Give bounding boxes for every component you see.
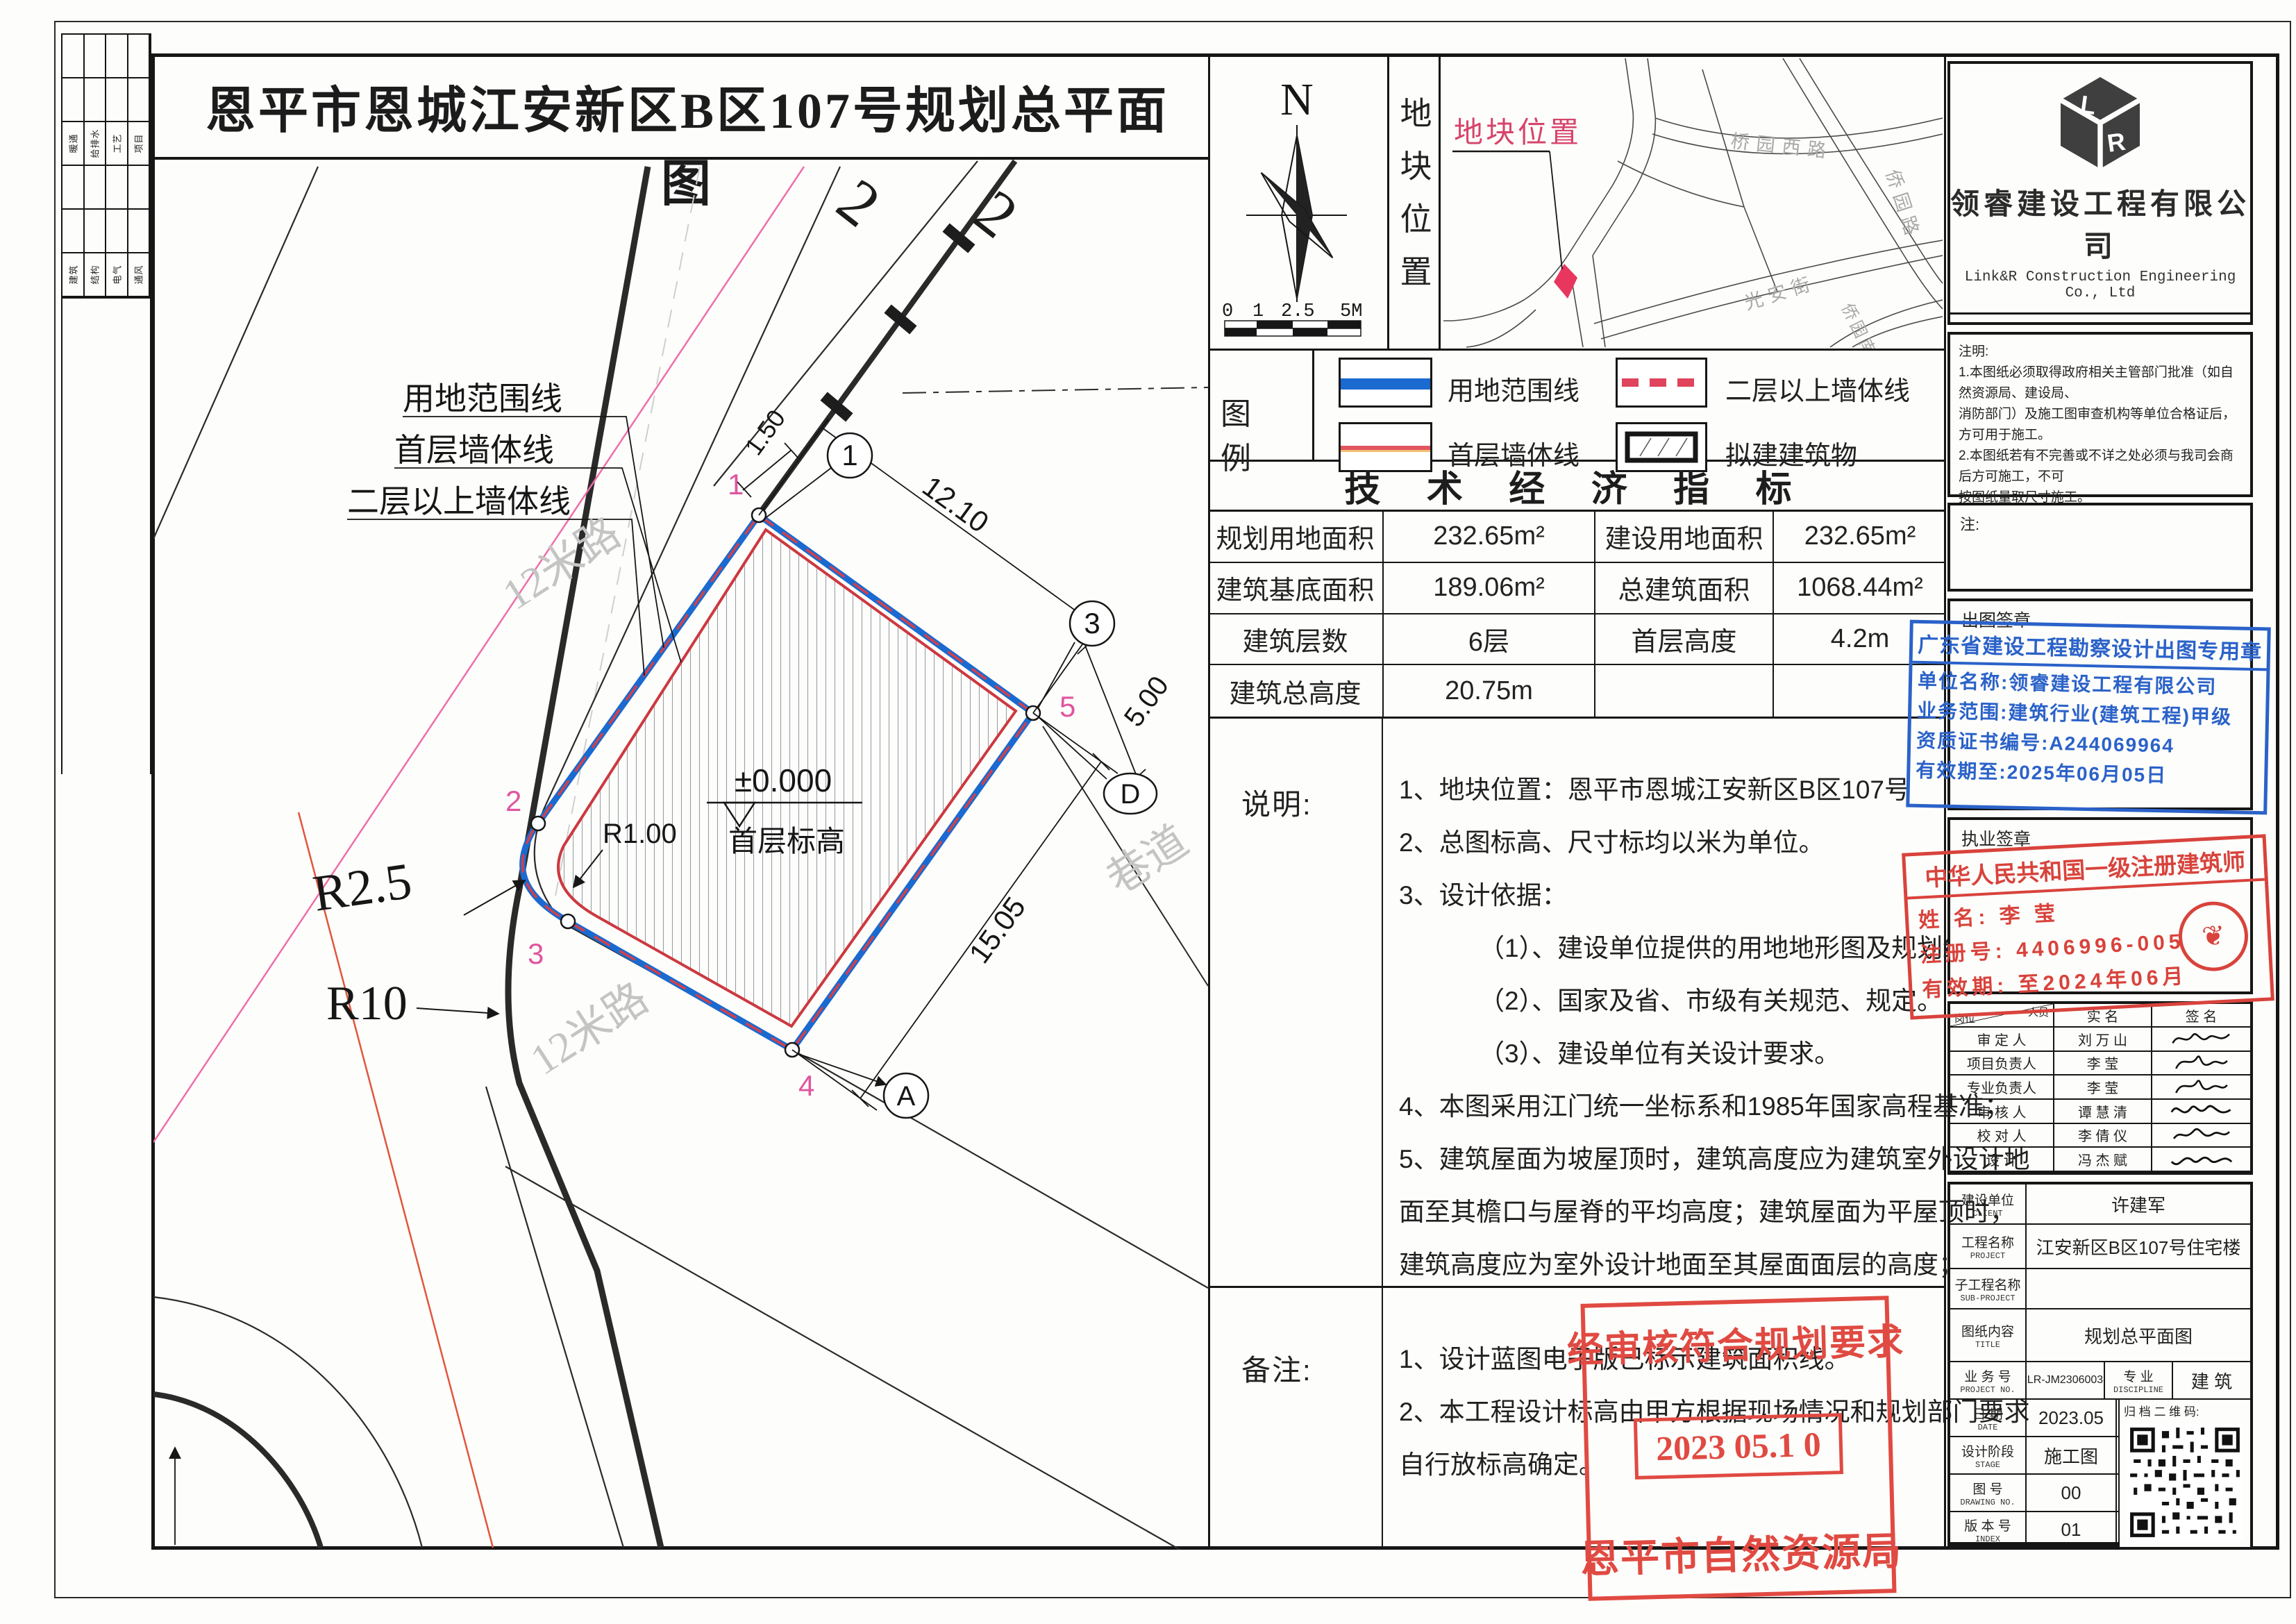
map-road-name: 光安街: [1742, 272, 1818, 313]
map-road-name: 桥园西路: [1729, 131, 1834, 162]
point-number: 2: [505, 785, 521, 817]
personnel-name: 刘 万 山: [2054, 1028, 2152, 1052]
tech-value: 6层: [1384, 614, 1595, 666]
legend-item-label: 二层以上墙体线: [1725, 369, 1910, 408]
tech-value: 189.06m²: [1384, 563, 1595, 614]
note-line: 4、本图采用江门统一坐标系和1985年国家高程基准；: [1399, 1080, 1941, 1133]
radius-label: R1.00: [603, 819, 677, 849]
callout-site-boundary: 用地范围线: [403, 380, 562, 417]
scalebar-icon: [1225, 321, 1361, 336]
point-number: 4: [798, 1069, 814, 1102]
tech-label: 总建筑面积: [1595, 563, 1774, 614]
personnel-name: 谭 慧 清: [2054, 1100, 2152, 1124]
tb-title-label: 图纸内容: [1961, 1321, 2014, 1340]
discipline-label: 项目: [132, 133, 145, 153]
tb-stage-value: 施工图: [2027, 1437, 2117, 1473]
legend-swatch-upper-wall: [1616, 358, 1707, 408]
note-line: 1、地块位置：恩平市恩城江安新区B区107号: [1399, 764, 1941, 817]
tb-discipline-value: 建 筑: [2173, 1362, 2250, 1398]
north-arrow-box: N 0 1 2.5 5M: [1210, 56, 1387, 349]
title-block: 建设单位CLIENT 许建军 工程名称PROJECT 江安新区B区107号住宅楼…: [1947, 1182, 2253, 1547]
tech-value: 20.75m: [1384, 665, 1595, 717]
tb-date-value: 2023.05: [2027, 1400, 2117, 1436]
tb-stage-label: 设计阶段: [1961, 1441, 2014, 1460]
north-label: N: [1280, 74, 1314, 125]
tb-no-label: 业 务 号: [1964, 1366, 2011, 1385]
signature: [2152, 1124, 2250, 1148]
map-roads: [1443, 58, 1943, 347]
signature: [2152, 1052, 2250, 1076]
survey-number: 2: [962, 176, 1031, 251]
tech-value: 232.65m²: [1384, 512, 1595, 563]
callout-floor1-wall: 首层墙体线: [394, 432, 554, 468]
discipline-label: 通风: [132, 265, 145, 284]
compass-icon: [1246, 125, 1347, 302]
discipline-label: 结构: [88, 265, 101, 284]
personnel-role: 项目负责人: [1950, 1052, 2054, 1076]
note-line: 3、设计依据：: [1399, 869, 1941, 922]
countersign-strip-tail: [61, 299, 151, 774]
discipline-label: 建筑: [66, 265, 79, 284]
instructions-box: 注明: 1.本图纸必须取得政府相关主管部门批准（如自然资源局、建设局、 消防部门…: [1947, 332, 2253, 497]
discipline-label: 工艺: [110, 133, 123, 153]
personnel-name: 冯 杰 赋: [2054, 1148, 2152, 1172]
note-line: （3）、建设单位有关设计要求。: [1399, 1028, 1941, 1080]
note-line: 建筑高度应为室外设计地面至其屋面面层的高度；: [1399, 1239, 1941, 1291]
note-box-label: 注:: [1950, 505, 2250, 542]
radius-label: R2.5: [310, 853, 415, 923]
instructions-label: 注明:: [1959, 342, 2242, 362]
map-callout: 地块位置: [1454, 116, 1582, 149]
level-label: 首层标高: [728, 825, 845, 857]
grid-label: A: [897, 1081, 916, 1112]
discipline-label: 给排水: [88, 128, 101, 158]
note-line: 2、总图标高、尺寸标均以米为单位。: [1399, 817, 1941, 869]
notes-body: 1、地块位置：恩平市恩城江安新区B区107号 2、总图标高、尺寸标均以米为单位。…: [1399, 764, 1941, 1291]
tb-client-value: 许建军: [2027, 1184, 2250, 1223]
dimension-text: 1.50: [739, 404, 791, 460]
location-map: 地块位置 桥园西路 侨园路 光安街 侨园南路: [1443, 56, 1944, 349]
approval-stamp-date: 2023 05.1 0: [1634, 1413, 1843, 1480]
map-road-name: 侨园路: [1882, 167, 1924, 243]
svg-text:1: 1: [1252, 301, 1264, 322]
personnel-role: 审 核 人: [1950, 1100, 2054, 1124]
tb-project-label: 工程名称: [1961, 1232, 2014, 1251]
archive-qr-code: [2127, 1424, 2243, 1541]
scalebar-labels: 0 1 2.5 5M: [1222, 301, 1362, 322]
company-logo-icon: L R: [2048, 71, 2152, 175]
chop-out-stamp: 广东省建设工程勘察设计出图专用章 单位名称:领睿建设工程有限公司 业务范围:建筑…: [1906, 620, 2271, 815]
map-road-name: 侨园南路: [1838, 301, 1888, 349]
grid-label: D: [1121, 779, 1141, 810]
instruction-line: 1.本图纸必须取得政府相关主管部门批准（如自然资源局、建设局、: [1959, 362, 2242, 404]
personnel-header-sign: 签 名: [2152, 1004, 2250, 1028]
tb-subproject-label: 子工程名称: [1954, 1275, 2020, 1294]
legend-item-label: 用地范围线: [1448, 369, 1579, 408]
svg-text:5M: 5M: [1340, 301, 1362, 322]
remarks-label: 备注:: [1241, 1347, 1312, 1389]
grid-label: 1: [841, 439, 857, 471]
notes-label: 说明:: [1241, 781, 1312, 823]
tech-label: 建筑基底面积: [1208, 563, 1384, 614]
qr-label: 归 档 二 维 码:: [2120, 1400, 2250, 1421]
tb-project-value: 江安新区B区107号住宅楼: [2027, 1225, 2250, 1268]
personnel-role: 专业负责人: [1950, 1075, 2054, 1100]
instruction-line: 2.本图纸若有不完善或不详之处必须与我司会商后方可施工，不可: [1959, 446, 2242, 487]
tech-label: [1595, 665, 1774, 717]
tb-discipline-label: 专 业: [2123, 1366, 2153, 1385]
tb-dwg-value: 00: [2027, 1475, 2117, 1511]
tech-label: 首层高度: [1595, 614, 1774, 666]
tech-table-title: 技 术 经 济 指 标: [1208, 462, 1946, 512]
note-line: （1）、建设单位提供的用地地形图及规划红线图。: [1399, 922, 1941, 975]
site-plan: 2 2 1 2 3 4 5 12.10: [153, 56, 1208, 1550]
point-number: 3: [528, 937, 544, 970]
instruction-line: 消防部门）及施工图审查机构等单位合格证后，方可用于施工。: [1959, 404, 2242, 446]
discipline-label: 暖通: [66, 133, 79, 153]
tech-value: 1068.44m²: [1774, 563, 1946, 614]
legend-swatch-site: [1339, 358, 1432, 408]
dimension-text: 5.00: [1118, 671, 1175, 733]
tech-value: 232.65m²: [1774, 512, 1946, 563]
tb-date-label: 日 期: [1972, 1404, 2002, 1423]
personnel-name: 李 莹: [2054, 1052, 2152, 1076]
signature: [2152, 1028, 2250, 1052]
note-line: 面至其檐口与屋脊的平均高度；建筑屋面为平屋顶时，: [1399, 1186, 1941, 1239]
dimension-text: 12.10: [916, 469, 995, 539]
signature: [2152, 1100, 2250, 1124]
point-number: 1: [728, 468, 744, 501]
dimension-text: 15.05: [962, 891, 1032, 969]
red-line-orange: [299, 812, 493, 1548]
svg-text:0: 0: [1222, 301, 1233, 322]
tb-no-value: LR-JM2306003: [2027, 1362, 2105, 1398]
signature: [2152, 1075, 2250, 1100]
radius-label: R10: [326, 977, 408, 1030]
tb-index-label: 版 本 号: [1964, 1516, 2011, 1534]
note-box: 注:: [1947, 503, 2253, 592]
tb-index-value: 01: [2027, 1512, 2117, 1547]
drawing-sheet: 暖通 给排水 工艺 项目 建筑 结构 电气 通风 恩平市恩城江安新区B区107号…: [0, 0, 2296, 1624]
grid-label: 3: [1084, 607, 1100, 639]
tech-label: 建设用地面积: [1595, 512, 1774, 563]
personnel-table: 人员 岗位 实 名 签 名 审 定 人 刘 万 山 项目负责人 李 莹 专业负责…: [1947, 1001, 2253, 1175]
discipline-label: 电气: [110, 265, 123, 284]
tb-title-value: 规划总平面图: [2027, 1309, 2250, 1361]
approval-stamp: 经审核符合规划要求 2023 05.1 0 恩平市自然资源局: [1580, 1296, 1896, 1600]
company-name: 领睿建设工程有限公司: [1950, 181, 2250, 265]
approval-stamp-line1: 经审核符合规划要求: [1566, 1312, 1905, 1373]
svg-text:R: R: [2105, 127, 2127, 158]
road-name: 12米路: [523, 974, 657, 1084]
personnel-name: 李 倩 仪: [2054, 1124, 2152, 1148]
tech-label: 建筑层数: [1208, 614, 1384, 666]
point-number: 5: [1059, 690, 1075, 723]
personnel-role: 校 对 人: [1950, 1124, 2054, 1148]
company-box: L R 领睿建设工程有限公司 Link&R Construction Engin…: [1947, 61, 2253, 325]
personnel-role: 设 计: [1950, 1148, 2054, 1172]
location-strip-label: 地块位置: [1391, 97, 1437, 308]
callout-floor2-wall: 二层以上墙体线: [347, 483, 571, 519]
tb-client-label: 建设单位: [1961, 1190, 2014, 1209]
tech-label: 规划用地面积: [1208, 512, 1384, 563]
tech-table: 规划用地面积 232.65m² 建设用地面积 232.65m² 建筑基底面积 1…: [1208, 512, 1946, 719]
location-strip: 地块位置: [1387, 56, 1441, 349]
personnel-name: 李 莹: [2054, 1075, 2152, 1100]
company-name-en: Link&R Construction Engineering Co., Ltd: [1950, 269, 2250, 301]
tb-dwg-label: 图 号: [1972, 1479, 2002, 1498]
note-line: （2）、国家及省、市级有关规范、规定。: [1399, 975, 1941, 1028]
note-line: 5、建筑屋面为坡屋顶时，建筑高度应为建筑室外设计地: [1399, 1133, 1941, 1186]
personnel-role: 审 定 人: [1950, 1028, 2054, 1052]
stamp-title: 广东省建设工程勘察设计出图专用章: [1913, 623, 2268, 671]
tech-label: 建筑总高度: [1208, 665, 1384, 717]
tb-subproject-value: [2027, 1269, 2250, 1308]
approval-stamp-org: 恩平市自然资源局: [1579, 1520, 1903, 1584]
road-name: 12米路: [495, 509, 629, 619]
chop-lic-stamp: 中华人民共和国一级注册建筑师 姓 名: 李 莹 注册号: 4406996-005…: [1902, 834, 2274, 1019]
signature: [2152, 1148, 2250, 1172]
level-value: ±0.000: [735, 762, 832, 798]
countersign-strip: 暖通 给排水 工艺 项目 建筑 结构 电气 通风: [61, 33, 151, 299]
svg-text:2.5: 2.5: [1281, 301, 1315, 322]
